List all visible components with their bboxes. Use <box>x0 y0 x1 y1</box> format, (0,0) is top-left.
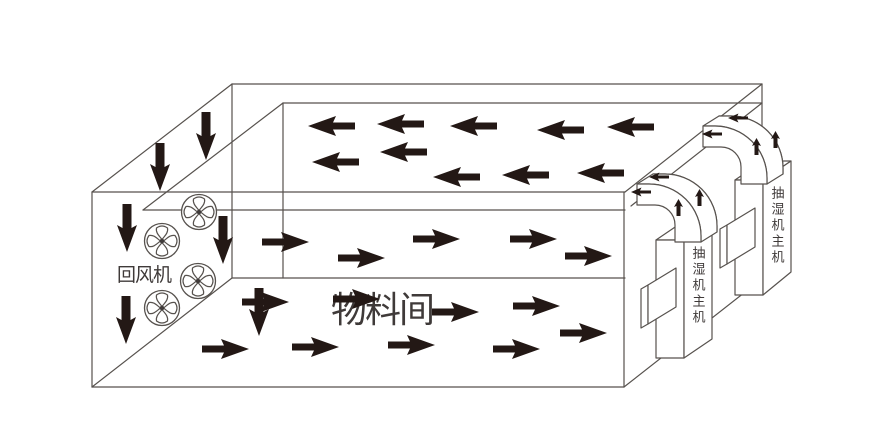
left-arrow-icon <box>502 165 549 185</box>
down-arrow-icon <box>117 204 137 252</box>
right-arrow-icon <box>493 339 540 359</box>
left-arrow-icon <box>380 142 427 162</box>
diagram-canvas: 物料间 抽湿机主机 抽湿机主机 <box>0 0 892 434</box>
left-arrow-icon <box>450 116 497 136</box>
right-arrow-icon <box>565 246 612 266</box>
left-arrow-icon <box>377 114 424 134</box>
left-arrow-icon <box>312 152 359 172</box>
down-arrow-icon <box>116 296 136 344</box>
right-arrow-icon <box>513 296 560 316</box>
right-arrow-icon <box>338 248 385 268</box>
dehumidifier-panel-side <box>720 225 727 268</box>
fan-icon <box>145 291 180 326</box>
drying-room-airflow-diagram: 物料间 抽湿机主机 抽湿机主机 <box>0 0 892 434</box>
right-arrow-icon <box>388 335 435 355</box>
duct-elbow-2 <box>703 116 783 184</box>
dehumidifier-2-label: 抽湿机主机 <box>770 186 785 266</box>
ceiling-airflow-arrows <box>308 114 654 187</box>
fan-icon <box>181 264 216 299</box>
left-arrow-icon <box>308 116 355 136</box>
left-arrow-icon <box>577 163 624 183</box>
right-arrow-icon <box>510 229 557 249</box>
down-arrow-icon <box>150 143 170 191</box>
right-arrow-icon <box>242 292 289 312</box>
right-arrow-icon <box>413 229 460 249</box>
dehumidifier-1-label: 抽湿机主机 <box>691 246 706 326</box>
right-arrow-icon <box>560 323 607 343</box>
down-arrow-icon <box>213 216 233 264</box>
fan-icon <box>182 195 217 230</box>
fan-icon <box>145 224 180 259</box>
right-arrow-icon <box>202 339 249 359</box>
right-arrow-icon <box>262 232 309 252</box>
return-fan-label: 回风机 <box>117 264 172 286</box>
dehumidifier-panel-side <box>641 285 648 328</box>
down-arrow-icon <box>196 112 216 160</box>
left-arrow-icon <box>537 120 584 140</box>
left-arrow-icon <box>607 117 654 137</box>
left-arrow-icon <box>433 167 480 187</box>
right-arrow-icon <box>292 337 339 357</box>
return-fans <box>145 195 217 326</box>
right-arrow-icon <box>432 302 479 322</box>
